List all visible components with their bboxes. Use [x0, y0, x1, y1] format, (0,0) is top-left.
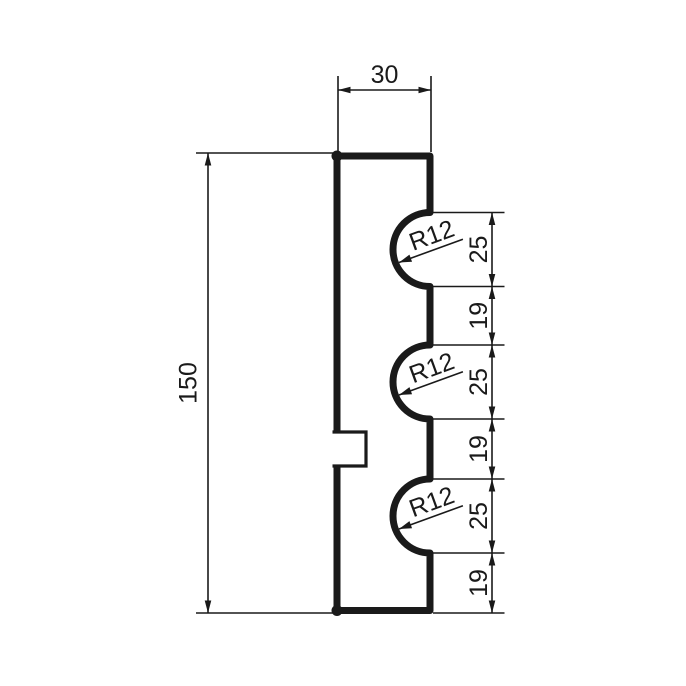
molding-profile-drawing: 30 150 [0, 0, 686, 686]
right-dim-label-2: 19 [465, 302, 493, 330]
width-dimension: 30 [338, 61, 431, 152]
right-dim-label-6: 19 [465, 569, 493, 597]
radius-label-1: R12 [405, 215, 458, 257]
right-dim-label-4: 19 [465, 435, 493, 463]
right-dim-label-3: 25 [465, 368, 493, 396]
left-groove [333, 432, 367, 466]
right-arrow [489, 553, 496, 566]
right-dim-label-1: 25 [465, 236, 493, 264]
radius-label-2: R12 [405, 347, 458, 389]
width-arrow-right [419, 87, 432, 94]
right-dim-label-5: 25 [465, 502, 493, 530]
height-arrow-top [205, 153, 212, 166]
corner-node-top-left [332, 151, 343, 162]
height-dim-label: 150 [175, 362, 203, 404]
right-arrow [489, 601, 496, 614]
right-arrow [489, 467, 496, 480]
height-dimension: 150 [175, 153, 334, 613]
right-arrow [489, 407, 496, 420]
right-dimensions: 25 19 25 19 25 19 [433, 213, 505, 614]
width-dim-label: 30 [371, 61, 399, 89]
corner-node-bottom-left [332, 605, 343, 616]
right-arrow [489, 479, 496, 492]
height-arrow-bottom [205, 601, 212, 614]
width-arrow-left [338, 87, 351, 94]
radius-label-3: R12 [405, 481, 458, 523]
right-arrow [489, 541, 496, 554]
technical-drawing-canvas: 30 150 [0, 0, 686, 686]
right-arrow [489, 287, 496, 300]
right-arrow [489, 274, 496, 287]
right-arrow [489, 345, 496, 358]
right-arrow [489, 333, 496, 346]
right-arrow [489, 213, 496, 226]
right-arrow [489, 419, 496, 432]
